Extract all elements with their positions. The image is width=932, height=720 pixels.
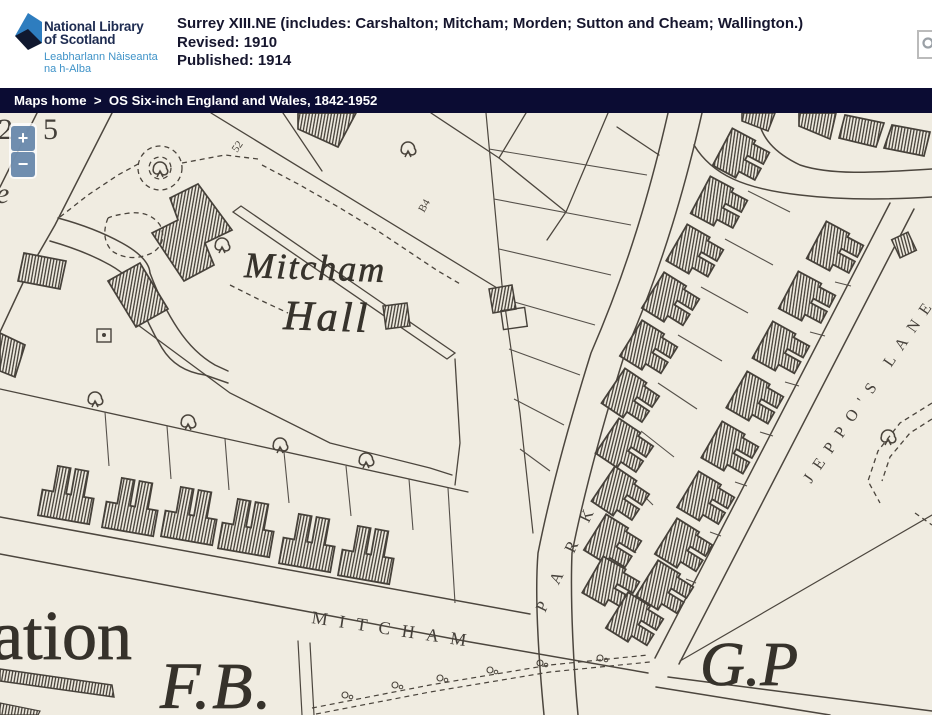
svg-text:Mitcham: Mitcham xyxy=(243,245,387,290)
svg-text:ation: ation xyxy=(0,598,132,675)
svg-text:e: e xyxy=(0,177,9,210)
svg-text:G.P: G.P xyxy=(700,631,798,699)
svg-text:Hall: Hall xyxy=(282,293,371,342)
svg-text:F.B.: F.B. xyxy=(159,650,273,715)
